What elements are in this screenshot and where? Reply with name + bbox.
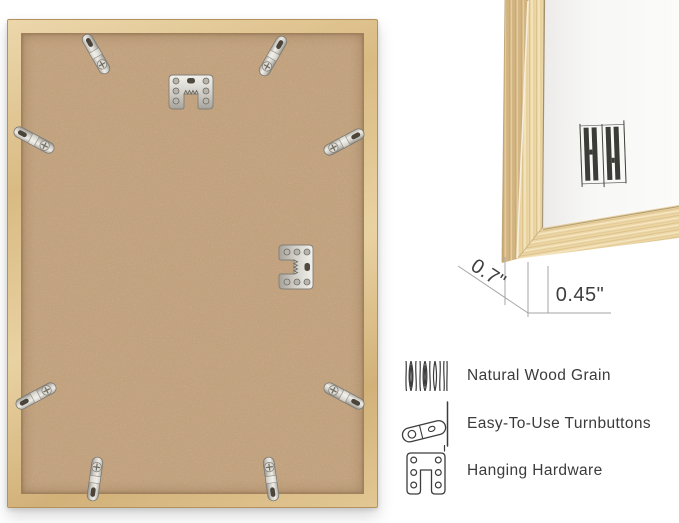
hanging-hardware-icon	[398, 445, 454, 497]
dimension-label-width: 0.45"	[556, 284, 605, 306]
feature-row: Easy-To-Use Turnbuttons	[398, 400, 651, 448]
corner-view: 0.7" 0.45"	[430, 0, 679, 330]
turnbutton-icon	[398, 401, 454, 447]
frame-back-photo	[7, 19, 378, 508]
sawtooth-hanger-side	[277, 243, 315, 291]
feature-label: Natural Wood Grain	[467, 367, 611, 385]
product-infographic: 0.7" 0.45"	[0, 0, 679, 523]
feature-label: Hanging Hardware	[467, 462, 603, 480]
feature-label: Easy-To-Use Turnbuttons	[467, 415, 651, 433]
sawtooth-hanger-top	[167, 73, 215, 111]
picture-surface	[543, 0, 679, 229]
feature-row: Hanging Hardware	[398, 444, 603, 498]
feature-row: Natural Wood Grain	[398, 358, 611, 394]
wood-grain-icon	[398, 361, 454, 391]
